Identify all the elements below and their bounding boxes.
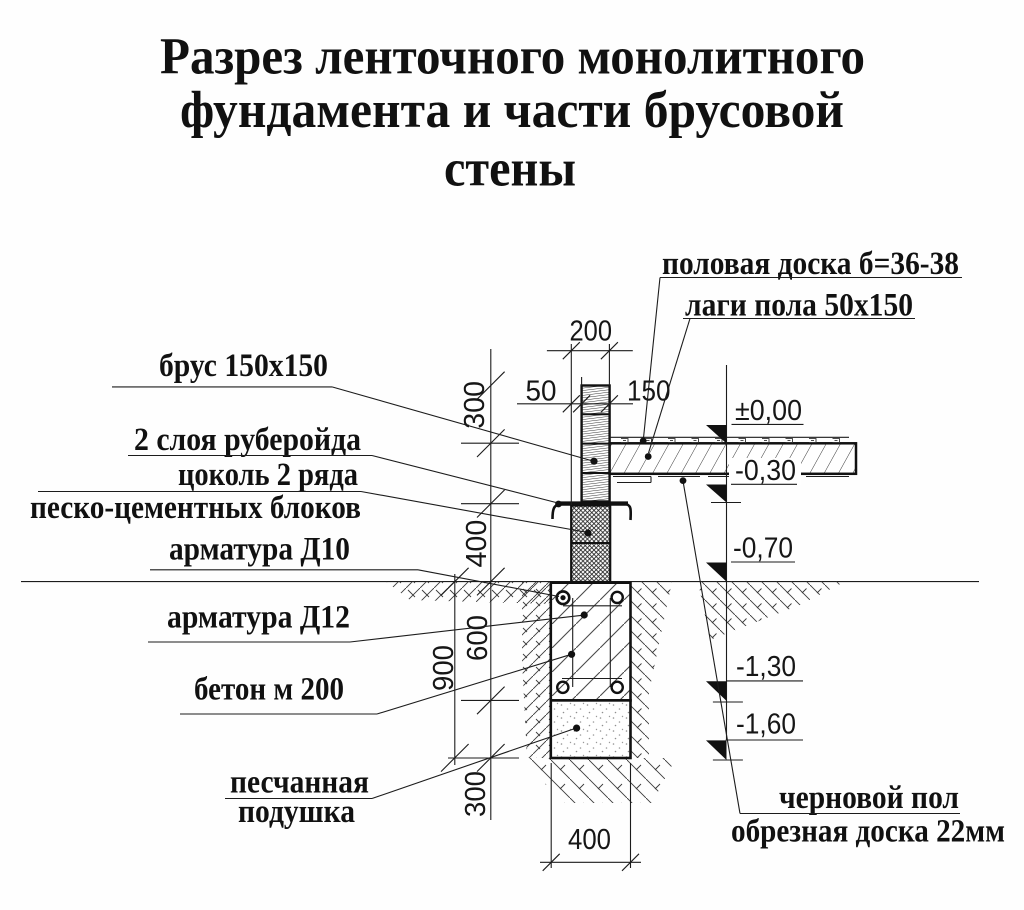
svg-text:бетон м 200: бетон м 200 [194, 672, 344, 708]
svg-text:400: 400 [461, 520, 493, 568]
svg-text:арматура Д10: арматура Д10 [169, 532, 350, 568]
svg-text:-0,30: -0,30 [735, 455, 796, 487]
svg-text:Разрез ленточного монолитного: Разрез ленточного монолитного [160, 29, 865, 86]
svg-text:цоколь 2 ряда: цоколь 2 ряда [178, 457, 358, 493]
svg-text:половая доска б=36-38: половая доска б=36-38 [662, 246, 959, 282]
svg-text:300: 300 [460, 771, 492, 817]
svg-text:песко-цементных блоков: песко-цементных блоков [30, 490, 361, 526]
svg-text:400: 400 [568, 824, 611, 856]
svg-text:200: 200 [570, 316, 613, 348]
svg-text:900: 900 [428, 645, 460, 691]
svg-text:брус 150х150: брус 150х150 [159, 348, 328, 384]
svg-text:2 слоя руберойда: 2 слоя руберойда [134, 422, 361, 458]
svg-text:-1,30: -1,30 [736, 651, 796, 683]
svg-text:-0,70: -0,70 [733, 533, 793, 565]
svg-text:подушка: подушка [238, 794, 355, 830]
svg-text:600: 600 [462, 615, 494, 661]
svg-text:обрезная доска 22мм: обрезная доска 22мм [731, 814, 1005, 850]
svg-text:300: 300 [459, 381, 491, 429]
svg-text:50: 50 [526, 376, 557, 408]
svg-text:стены: стены [444, 141, 576, 198]
svg-text:фундамента и части брусовой: фундамента и части брусовой [180, 82, 844, 139]
svg-text:арматура Д12: арматура Д12 [167, 600, 350, 636]
svg-text:черновой пол: черновой пол [779, 780, 959, 816]
svg-text:±0,00: ±0,00 [735, 395, 802, 427]
svg-text:-1,60: -1,60 [736, 709, 796, 741]
